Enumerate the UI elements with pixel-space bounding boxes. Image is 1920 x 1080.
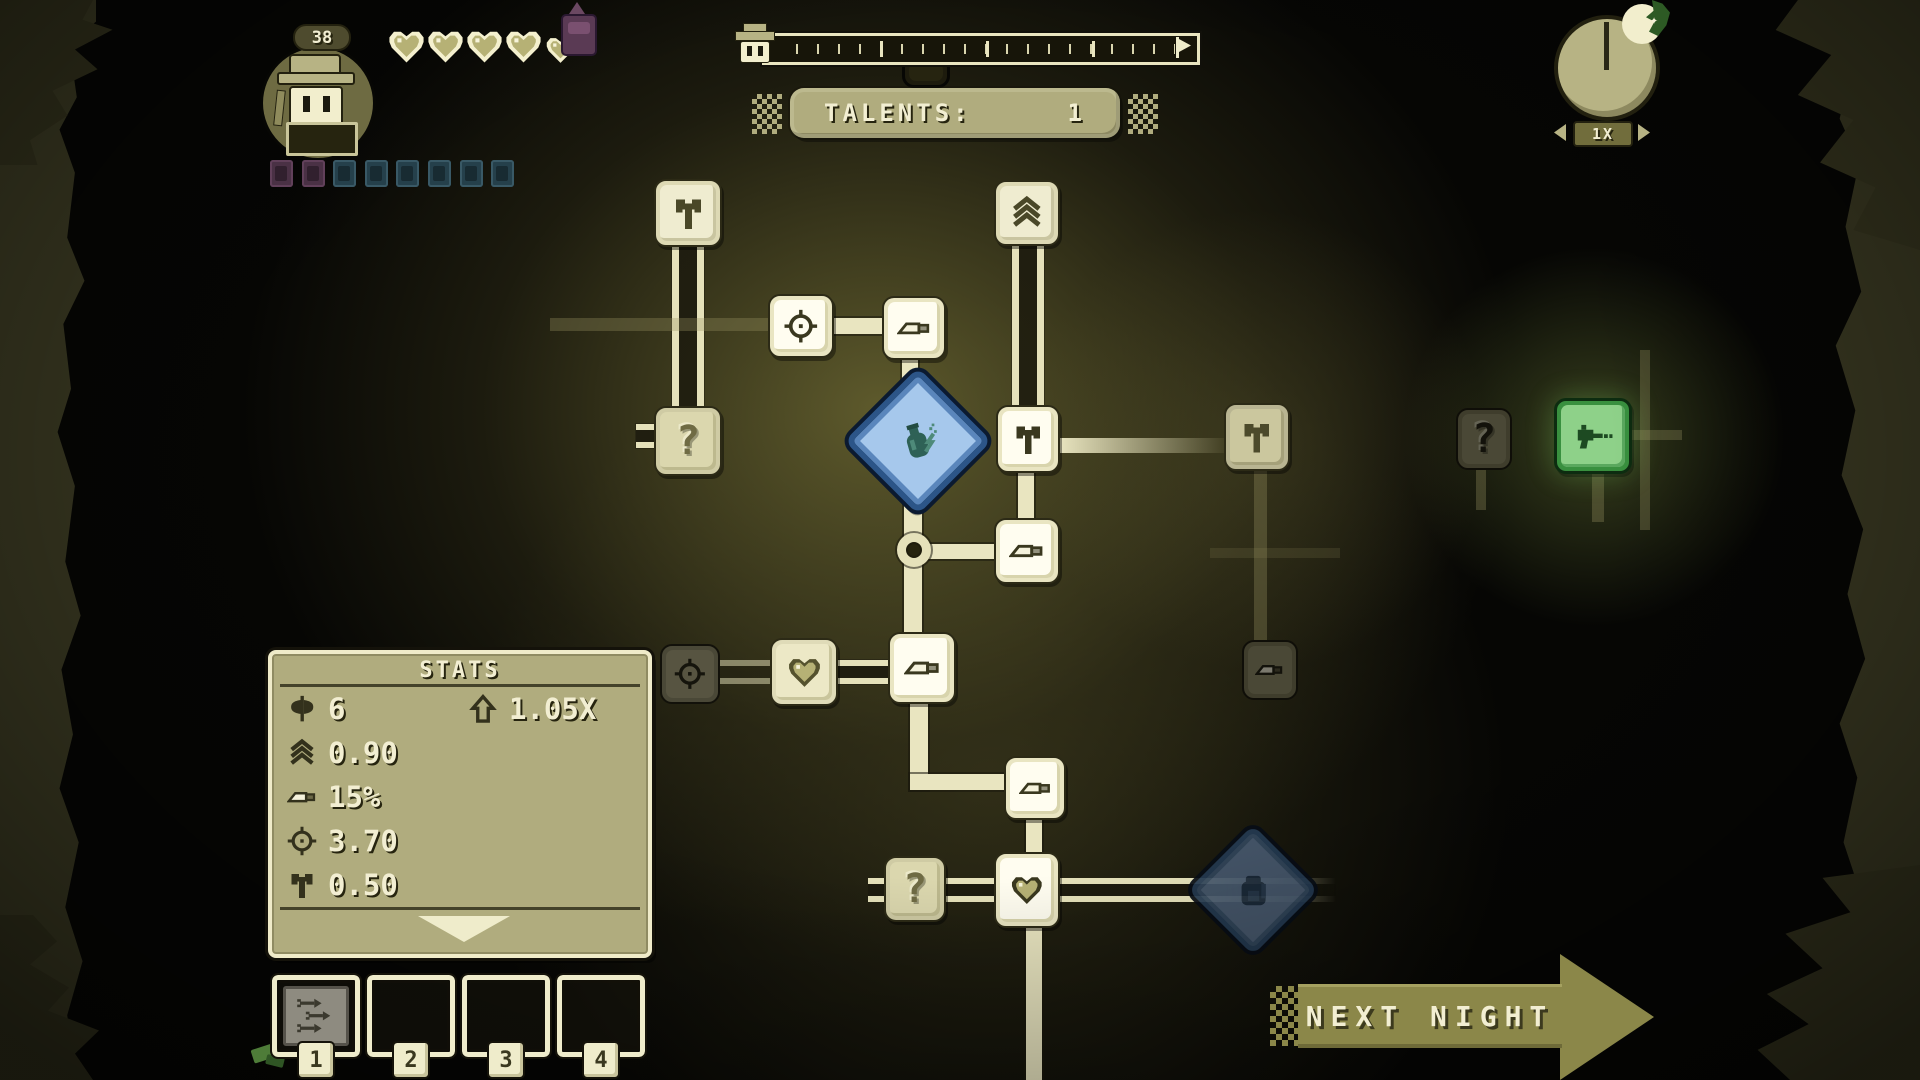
node-face <box>888 302 940 354</box>
heart-icon <box>786 654 823 691</box>
stat-value: 3.70 <box>328 824 398 858</box>
hammer-icon <box>287 870 317 900</box>
tree-link <box>636 424 656 448</box>
node-face <box>666 650 714 698</box>
status-badge <box>333 160 356 187</box>
heart-full-icon <box>425 28 466 65</box>
knife-icon <box>287 782 317 812</box>
next-night-button[interactable]: NEXT NIGHT <box>1298 984 1562 1048</box>
talents-banner: TALENTS: 1 <box>790 88 1120 138</box>
buff-pouch-icon <box>561 14 597 56</box>
node-face <box>909 63 943 81</box>
level-value: 38 <box>312 28 332 48</box>
node-face <box>1002 411 1054 467</box>
talent-question-dim[interactable]: ? <box>1456 408 1512 470</box>
potion-icon <box>894 417 942 465</box>
tree-junction-ring <box>897 533 931 567</box>
stat-value: 0.90 <box>328 736 398 770</box>
talent-raygun[interactable] <box>1554 398 1632 474</box>
slot-number-1: 1 <box>299 1043 333 1077</box>
slot-number-2: 2 <box>394 1043 428 1077</box>
node-face <box>1000 858 1054 922</box>
talent-heart-2[interactable] <box>994 852 1060 928</box>
weapon-staff-icon <box>273 90 286 127</box>
arrows3-icon <box>292 994 340 1037</box>
node-face <box>1561 405 1625 467</box>
knife-icon <box>904 648 941 688</box>
stat-extra: 1.05X <box>468 687 596 731</box>
night-progress-bar <box>762 33 1200 65</box>
talent-crosshair-dim[interactable] <box>660 644 720 704</box>
triple-arrow-item[interactable] <box>283 986 349 1046</box>
talent-knife-4[interactable] <box>1004 756 1066 820</box>
axe-icon <box>287 694 317 724</box>
game-screen: ??? 38 TALENTS: 1 <box>0 0 1920 1080</box>
eye-left <box>303 96 310 112</box>
tree-link <box>1210 548 1340 558</box>
progress-player-marker-icon <box>733 23 777 67</box>
tree-link <box>1592 472 1604 522</box>
talents-count: 1 <box>1068 99 1082 127</box>
status-badge <box>428 160 451 187</box>
tree-link <box>550 318 772 331</box>
tree-link <box>1012 246 1044 406</box>
talent-knife-3[interactable] <box>888 632 956 704</box>
moon-star-icon: ✦ <box>1647 14 1661 28</box>
stat-value: 0.50 <box>328 868 398 902</box>
tree-link <box>718 660 772 684</box>
node-face <box>1000 186 1054 240</box>
question-icon: ? <box>1472 419 1496 459</box>
tree-link <box>1018 471 1034 519</box>
stat-value: 6 <box>328 692 345 726</box>
talent-hammer-top[interactable] <box>654 179 722 247</box>
stat-row-knife: 15% <box>272 775 648 819</box>
node-face <box>1010 762 1060 814</box>
node-face <box>1230 409 1284 465</box>
node-face <box>774 300 828 352</box>
bag-icon <box>1232 869 1275 912</box>
level-badge: 38 <box>293 24 351 51</box>
status-badge <box>396 160 419 187</box>
stats-title: STATS <box>280 658 640 687</box>
status-badge <box>491 160 514 187</box>
talent-hammer-right[interactable] <box>1224 403 1290 471</box>
heart-full-icon <box>464 28 505 65</box>
tree-link <box>1476 466 1486 510</box>
crosshair-icon <box>783 309 819 343</box>
face <box>289 86 343 126</box>
stats-rows: 61.05X0.9015%3.700.50 <box>272 687 648 907</box>
hammer-icon <box>1011 421 1045 458</box>
node-face: ? <box>1462 414 1506 464</box>
heart-full-icon <box>386 28 427 65</box>
status-badge <box>460 160 483 187</box>
status-badge <box>302 160 325 187</box>
progress-ticks-large <box>777 41 1175 57</box>
progress-goal-flag-icon <box>1176 37 1192 58</box>
knife-icon <box>1019 771 1052 805</box>
next-night-label: NEXT NIGHT <box>1306 1000 1555 1033</box>
talent-hammer-mid[interactable] <box>996 405 1060 473</box>
crosshair-icon <box>287 826 317 856</box>
tree-link <box>836 660 890 684</box>
hammer-icon <box>1239 419 1275 456</box>
knife-icon <box>1009 533 1045 569</box>
heart-icon <box>464 28 505 65</box>
stats-separator <box>280 907 640 910</box>
node-face <box>776 644 832 700</box>
clock-needle <box>1604 22 1609 70</box>
status-badge <box>270 160 293 187</box>
talent-question-left[interactable]: ? <box>654 406 722 476</box>
talent-chevrons[interactable] <box>994 180 1060 246</box>
speed-toggle-button[interactable]: 1X <box>1573 121 1633 147</box>
chevrons-icon <box>287 738 317 768</box>
gun-icon <box>1572 416 1614 457</box>
talent-question-bottom[interactable]: ? <box>884 856 946 922</box>
eye-right <box>323 96 330 112</box>
node-face <box>660 185 716 241</box>
question-icon: ? <box>903 869 927 909</box>
flag-pennant <box>1179 39 1191 52</box>
stat-row-hammer: 0.50 <box>272 863 648 907</box>
tree-link <box>832 318 884 334</box>
node-face <box>1000 524 1054 578</box>
heart-icon <box>503 28 544 65</box>
knife-icon <box>1255 654 1284 686</box>
marker-brim <box>735 31 775 41</box>
heart-icon <box>425 28 466 65</box>
talent-heart-1[interactable] <box>770 638 838 706</box>
talents-label: TALENTS: <box>824 99 972 127</box>
heart-icon <box>386 28 427 65</box>
tree-link <box>1630 430 1682 440</box>
speed-label: 1X <box>1592 125 1614 143</box>
stat-extra-value: 1.05X <box>509 692 596 726</box>
node-face <box>894 638 950 698</box>
tree-link <box>1640 350 1650 530</box>
node-face <box>1248 646 1292 694</box>
hat-brim-icon <box>277 72 355 85</box>
uparrow-icon <box>468 694 498 724</box>
tree-link <box>1026 926 1042 1080</box>
slot-number-3: 3 <box>489 1043 523 1077</box>
marker-face <box>740 41 770 63</box>
talent-knife-1[interactable] <box>882 296 946 360</box>
stat-value: 15% <box>328 780 380 814</box>
diamond-icon-holder <box>1212 849 1294 931</box>
flag-pole <box>1176 37 1179 58</box>
question-icon: ? <box>676 421 700 461</box>
banner-dither-right <box>1128 94 1158 134</box>
talent-knife-dim[interactable] <box>1242 640 1298 700</box>
slot-number-4: 4 <box>584 1043 618 1077</box>
next-night-dither <box>1270 986 1300 1046</box>
banner-dither-left <box>752 94 782 134</box>
diamond-icon-holder <box>872 395 964 487</box>
tree-link <box>1058 438 1226 453</box>
marker-eye-right <box>758 46 763 56</box>
talent-knife-2[interactable] <box>994 518 1060 584</box>
hammer-icon <box>670 195 707 232</box>
talent-crosshair[interactable] <box>768 294 834 358</box>
marker-eye-left <box>747 46 752 56</box>
node-face: ? <box>890 862 940 916</box>
stats-panel: STATS 61.05X0.9015%3.700.50 <box>268 650 652 958</box>
heart-icon <box>1009 869 1045 911</box>
tree-link <box>1026 818 1042 854</box>
stats-collapse-arrow[interactable] <box>418 916 510 942</box>
heart-full-icon <box>503 28 544 65</box>
crosshair-icon <box>674 658 706 690</box>
status-badge <box>365 160 388 187</box>
knife-icon <box>897 311 931 345</box>
chevrons-icon <box>1009 195 1045 231</box>
stat-row-axe: 61.05X <box>272 687 648 731</box>
tree-link <box>910 774 1006 790</box>
stat-row-crosshair: 3.70 <box>272 819 648 863</box>
portrait-nameplate <box>286 122 358 156</box>
stat-row-chevrons: 0.90 <box>272 731 648 775</box>
node-face: ? <box>660 412 716 470</box>
